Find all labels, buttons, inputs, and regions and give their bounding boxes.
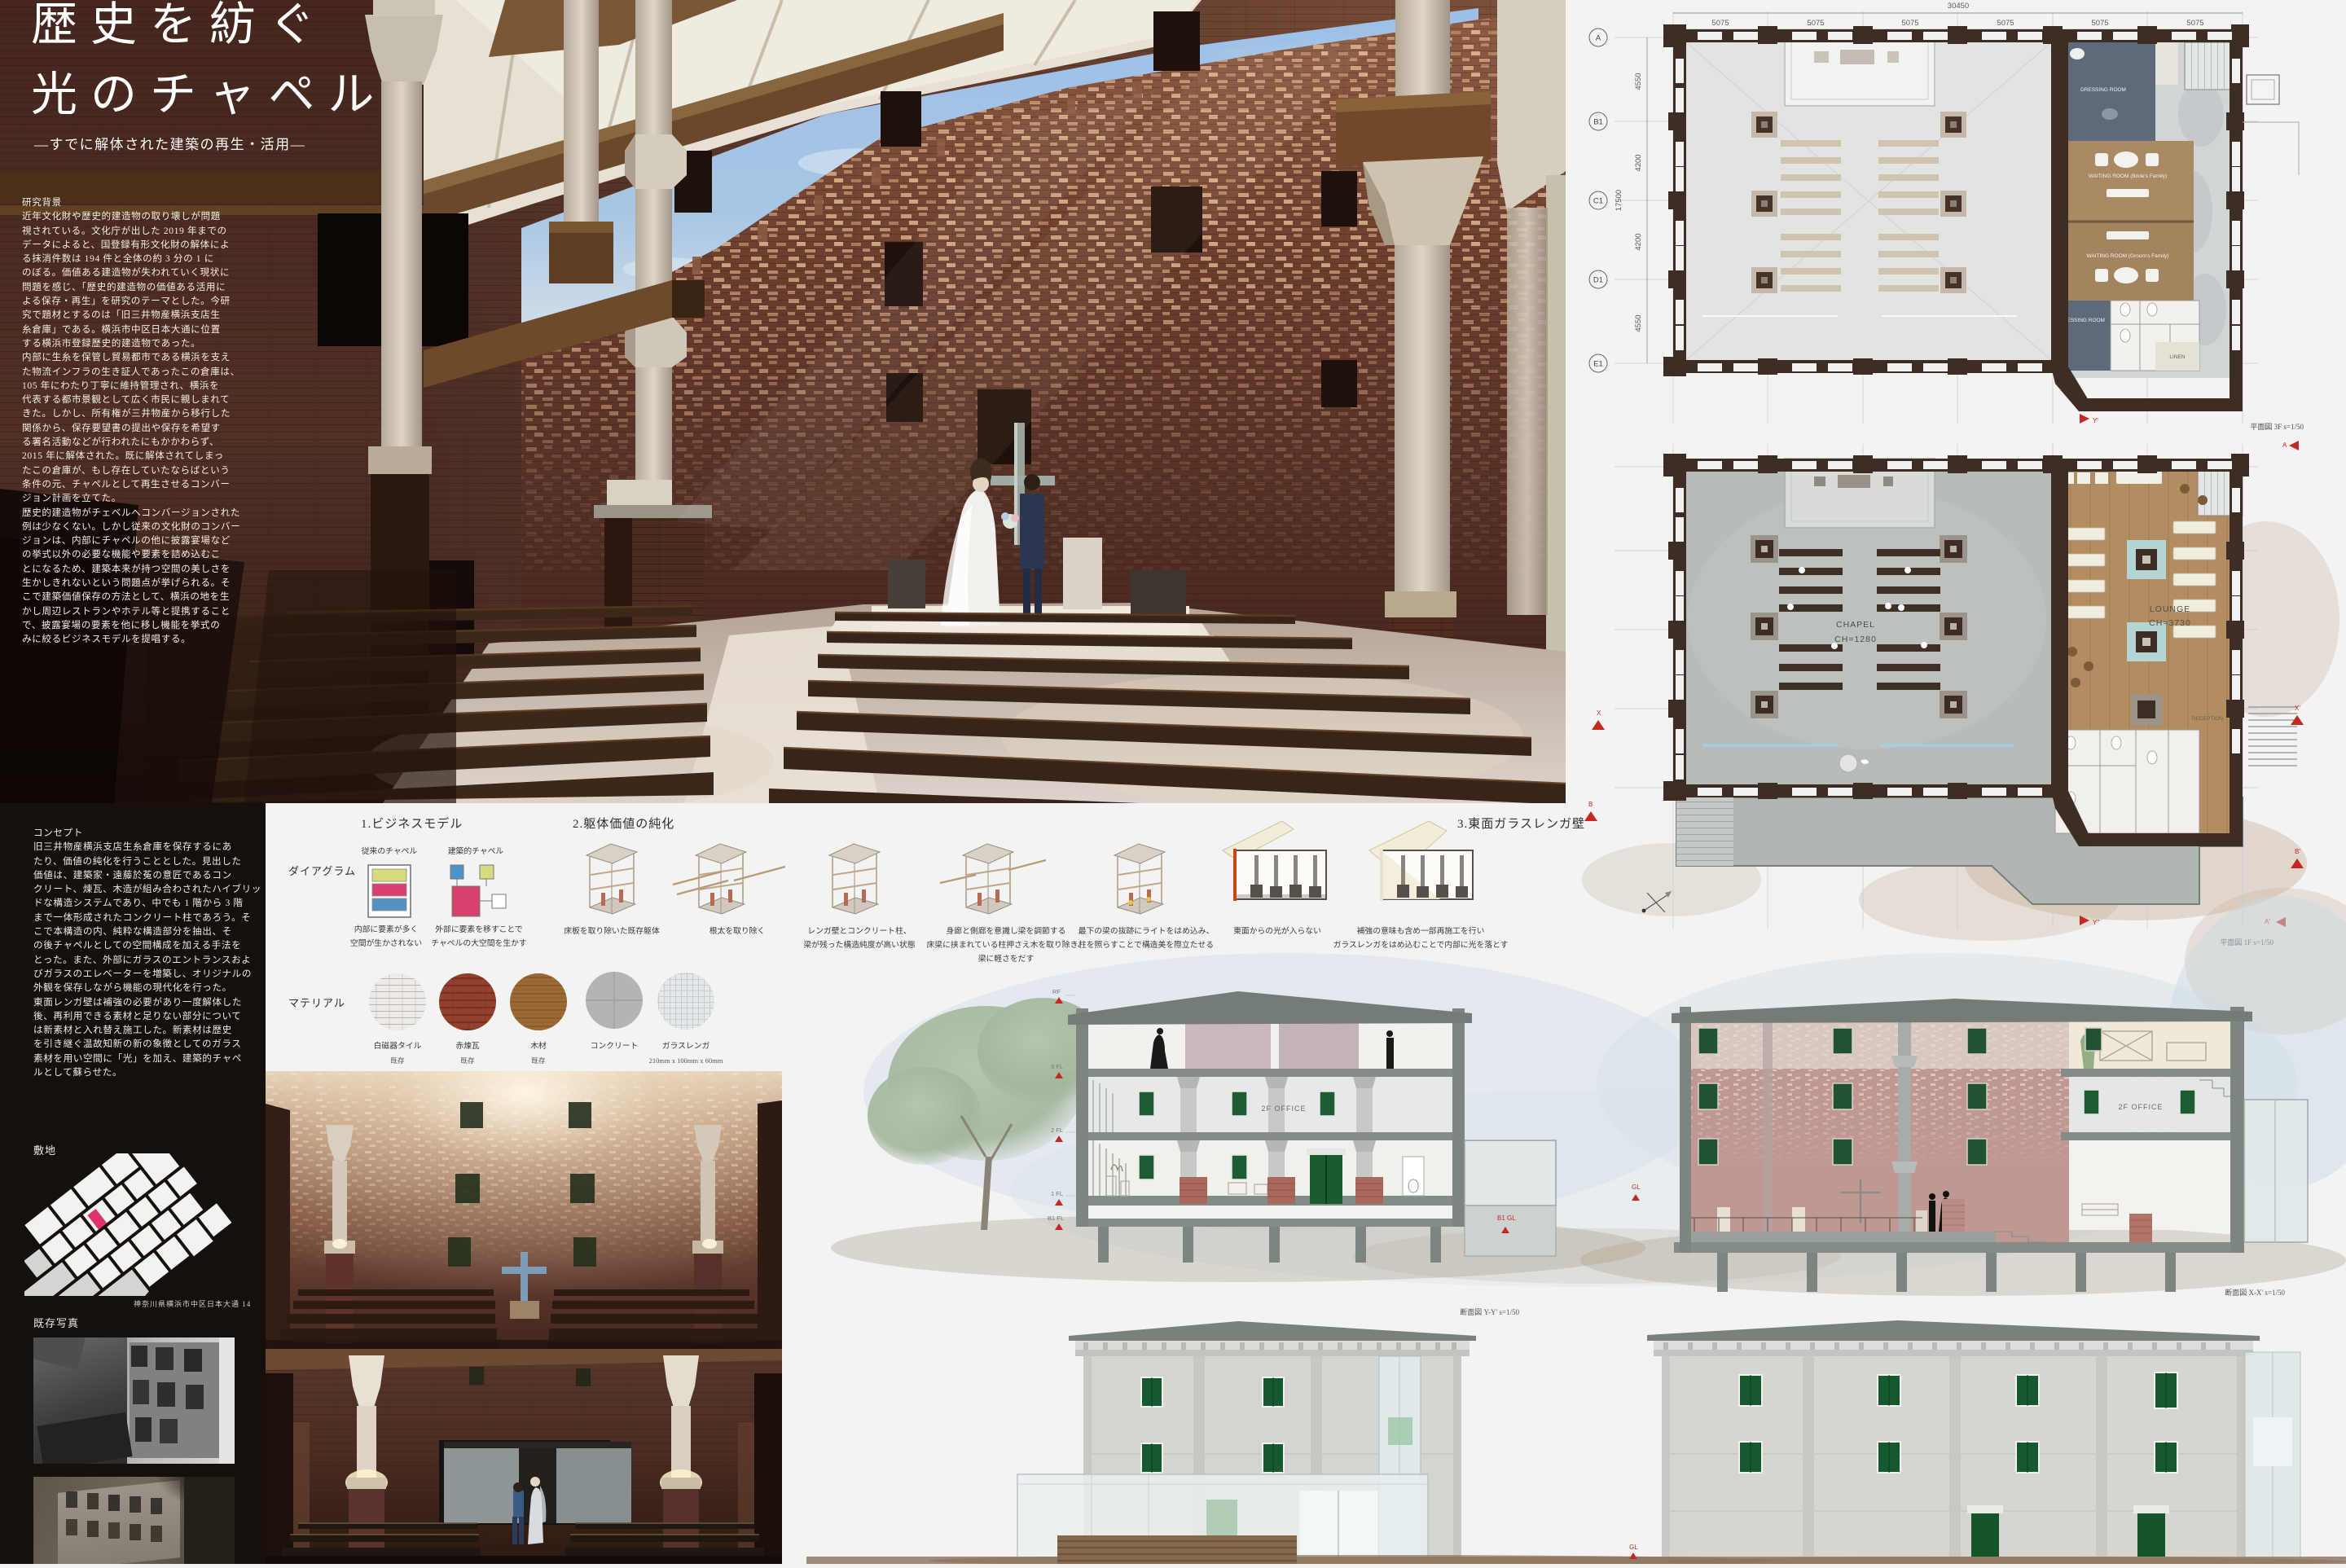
svg-text:C1: C1 [1593,197,1603,206]
svg-text:空間が生かされない: 空間が生かされない [350,938,422,948]
svg-text:5075: 5075 [1901,19,1918,28]
svg-text:2F OFFICE: 2F OFFICE [2118,1103,2163,1111]
svg-text:白磁器タイル: 白磁器タイル [374,1040,422,1051]
svg-text:GL: GL [1632,1184,1641,1191]
svg-text:1.ビジネスモデル: 1.ビジネスモデル [361,816,463,831]
svg-text:B: B [1588,801,1593,808]
svg-text:断面図 Y-Y' s=1/50: 断面図 Y-Y' s=1/50 [1460,1307,1519,1316]
svg-text:既存: 既存 [531,1056,546,1065]
svg-text:3 FL: 3 FL [1051,1063,1063,1070]
svg-text:WAITING ROOM (Bride's Family): WAITING ROOM (Bride's Family) [2089,173,2167,179]
svg-text:Y': Y' [2093,417,2098,424]
svg-text:ガラスレンガ: ガラスレンガ [662,1041,710,1051]
svg-text:5075: 5075 [1807,19,1824,28]
svg-text:木材: 木材 [530,1040,547,1051]
svg-text:マテリアル: マテリアル [288,997,345,1009]
svg-text:B1 GL: B1 GL [1497,1214,1516,1222]
svg-text:外部に要素を移すことで: 外部に要素を移すことで [435,924,523,934]
svg-text:既存: 既存 [390,1056,405,1065]
svg-text:17500: 17500 [1615,190,1623,211]
svg-text:5075: 5075 [2186,19,2203,28]
svg-text:GL: GL [1629,1544,1638,1551]
svg-text:コンクリート: コンクリート [591,1041,639,1051]
svg-text:LOUNGE: LOUNGE [2150,604,2190,614]
svg-text:断面図 X-X' s=1/50: 断面図 X-X' s=1/50 [2225,1288,2285,1297]
svg-text:LINEN: LINEN [2169,354,2185,360]
svg-text:2 FL: 2 FL [1051,1127,1063,1134]
svg-text:4200: 4200 [1634,233,1643,250]
svg-text:既存: 既存 [460,1056,475,1065]
svg-text:建築的チャペル: 建築的チャペル [448,845,504,856]
svg-text:DRESSING ROOM: DRESSING ROOM [2080,87,2126,93]
svg-text:5075: 5075 [2091,19,2108,28]
svg-text:WAITING ROOM (Groom's Family): WAITING ROOM (Groom's Family) [2086,253,2168,259]
svg-text:CH=1280: CH=1280 [1834,635,1877,644]
svg-text:2.躯体価値の純化: 2.躯体価値の純化 [573,817,674,831]
svg-text:5075: 5075 [1711,19,1729,28]
svg-text:CHAPEL: CHAPEL [1836,620,1875,630]
svg-text:ダイアグラム: ダイアグラム [288,865,356,877]
svg-text:X': X' [2295,705,2300,712]
svg-text:B1 FL: B1 FL [1048,1214,1064,1222]
svg-text:CH=3730: CH=3730 [2149,618,2191,628]
svg-text:チャペルの大空間を生かす: チャペルの大空間を生かす [431,938,527,948]
svg-text:30450: 30450 [1948,2,1969,11]
svg-text:X: X [1597,709,1601,717]
svg-text:平面図 3F s=1/50: 平面図 3F s=1/50 [2250,423,2304,431]
svg-text:RECEPTION: RECEPTION [2192,716,2223,722]
svg-text:RF: RF [1052,988,1061,995]
svg-text:B1: B1 [1593,118,1603,127]
svg-text:赤煉瓦: 赤煉瓦 [455,1041,480,1051]
svg-text:D1: D1 [1593,276,1603,285]
svg-text:4200: 4200 [1634,154,1643,171]
svg-text:5075: 5075 [1997,19,2014,28]
svg-text:A: A [1596,34,1601,43]
svg-text:E1: E1 [1593,360,1603,369]
svg-text:1 FL: 1 FL [1051,1190,1063,1197]
svg-text:210mm x 100mm x 60mm: 210mm x 100mm x 60mm [649,1056,723,1065]
svg-text:4550: 4550 [1634,72,1643,90]
svg-text:A: A [2282,441,2287,449]
svg-text:従来のチャペル: 従来のチャペル [362,845,418,856]
svg-text:床板を取り除いた既存躯体: 床板を取り除いた既存躯体 [564,925,660,936]
svg-text:内部に要素が多く: 内部に要素が多く [354,924,418,934]
svg-text:2F OFFICE: 2F OFFICE [1261,1105,1306,1113]
svg-text:根太を取り除く: 根太を取り除く [710,925,766,936]
svg-text:4550: 4550 [1634,314,1643,332]
